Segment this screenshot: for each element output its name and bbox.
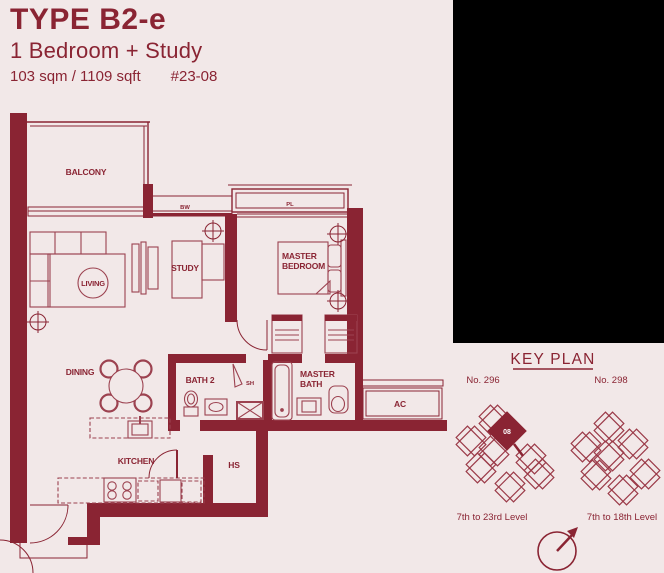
page-subtitle: 1 Bedroom + Study: [10, 38, 217, 64]
master-bedroom-label-2: BEDROOM: [282, 261, 325, 271]
dining-label: DINING: [66, 367, 95, 377]
area-text: 103 sqm / 1109 sqft: [10, 68, 141, 85]
kitchen-counter: [58, 478, 204, 503]
floor-plan-page: TYPE B2-e 1 Bedroom + Study 103 sqm / 11…: [0, 0, 664, 573]
living-label: LIVING: [81, 279, 105, 288]
area-line: 103 sqm / 1109 sqft#23-08: [10, 68, 217, 85]
shower-label: SH: [246, 381, 254, 387]
key-plan-title: KEY PLAN: [510, 351, 595, 368]
planter-label: PL: [286, 202, 294, 208]
study-label: STUDY: [171, 263, 199, 273]
plan-header: TYPE B2-e 1 Bedroom + Study 103 sqm / 11…: [10, 4, 217, 85]
floor-plan-drawing: BALCONY LIVING STUDY MASTER BEDROOM DINI…: [0, 0, 664, 573]
bath2-label: BATH 2: [186, 375, 215, 385]
tv-console: [132, 242, 158, 294]
building-right-number: No. 298: [594, 375, 627, 386]
page-title: TYPE B2-e: [10, 4, 217, 36]
wardrobes: [272, 315, 357, 353]
balcony-label: BALCONY: [66, 167, 107, 177]
bath2-fixtures: [184, 364, 263, 419]
master-bedroom-label-1: MASTER: [282, 251, 317, 261]
key-plan: KEY PLAN No. 296 No. 298 08: [453, 351, 664, 570]
highlighted-unit-08: 08: [487, 411, 527, 456]
bay-window-label: BW: [180, 205, 190, 211]
north-arrow-icon: [538, 527, 578, 570]
master-bath-label-1: MASTER: [300, 369, 335, 379]
unit-08-label: 08: [503, 429, 511, 436]
kitchen-island: [90, 416, 170, 438]
hs-label: HS: [228, 460, 240, 470]
building-right-levels: 7th to 18th Level: [587, 512, 657, 523]
unit-number: #23-08: [171, 68, 218, 85]
dining-set: [101, 361, 152, 412]
walls: [10, 113, 447, 545]
planter: [228, 185, 352, 217]
building-left-number: No. 296: [466, 375, 499, 386]
master-bath-label-2: BATH: [300, 379, 322, 389]
living-sofa: [30, 232, 125, 307]
building-left-levels: 7th to 23rd Level: [457, 512, 528, 523]
ac-label: AC: [394, 399, 406, 409]
building-right-cluster: [568, 409, 664, 509]
black-panel: [453, 0, 664, 343]
kitchen-label: KITCHEN: [118, 456, 154, 466]
